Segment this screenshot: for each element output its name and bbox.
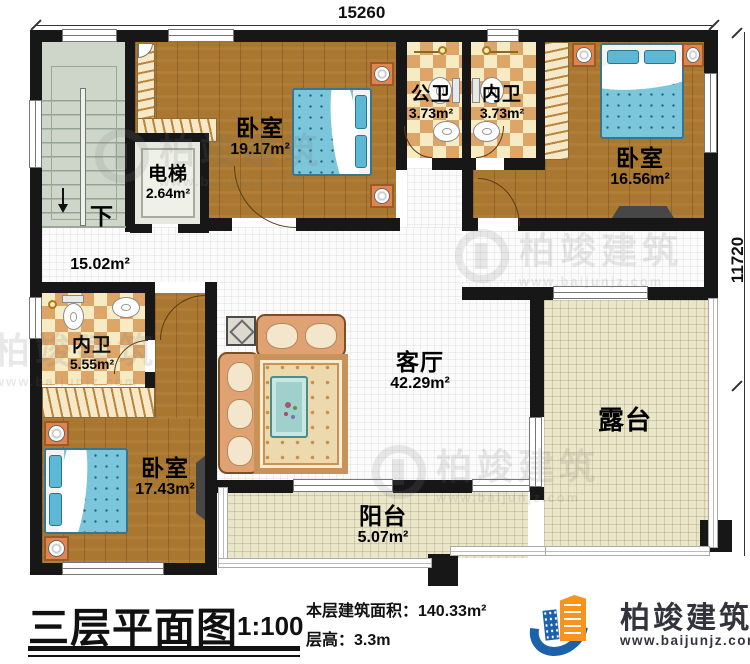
- window: [62, 562, 164, 575]
- room-name: 露台: [563, 406, 687, 435]
- room-area: 16.56m²: [578, 171, 702, 189]
- sheet-title: 三层平面图: [28, 594, 238, 654]
- room-label-public-bath: 公卫 3.73m²: [400, 85, 462, 121]
- room-area: 5.07m²: [321, 529, 445, 547]
- wall-segment: [704, 30, 718, 300]
- toilet-tank: [62, 295, 84, 303]
- floor-area-text: 本层建筑面积：140.33m²: [306, 597, 487, 621]
- balcony-railing: [450, 546, 546, 556]
- floor-plan-sheet: 卧室 19.17m² 公卫 3.73m² 内卫 3.73m² 卧室 16.56m…: [0, 0, 750, 664]
- logo-swoosh-icon: [519, 588, 600, 664]
- watermark-site: www.baijunjz.com: [159, 174, 323, 189]
- shower-head-icon: [438, 46, 447, 55]
- hallway-area-label: 15.02m²: [48, 256, 152, 274]
- pillow: [49, 493, 62, 526]
- title-underline: [28, 655, 300, 657]
- floor-hallway-column: [407, 168, 462, 227]
- terrace-railing: [708, 298, 718, 548]
- wall-segment: [30, 282, 155, 293]
- nightstand: [370, 62, 394, 86]
- room-name: 卧室: [103, 456, 227, 481]
- nightstand: [370, 184, 394, 208]
- sofa-cushion: [227, 362, 253, 392]
- wall-segment: [504, 158, 545, 170]
- sheet-scale: 1:100: [237, 611, 304, 642]
- pillow: [607, 50, 639, 65]
- nightstand: [682, 43, 704, 67]
- room-label-terrace: 露台: [563, 406, 687, 435]
- room-area: 42.29m²: [358, 375, 482, 393]
- pillow: [49, 455, 62, 488]
- window: [704, 73, 717, 153]
- watermark-site: www.baijunjz.com: [0, 374, 158, 389]
- corner-table: [226, 316, 256, 346]
- wardrobe: [542, 42, 569, 160]
- floor-hallway: [42, 227, 462, 282]
- watermark-site: www.baijunjz.com: [519, 274, 683, 289]
- tv: [612, 206, 674, 218]
- shower-rod: [490, 51, 518, 53]
- balcony-railing: [218, 558, 432, 568]
- logo-blue-building-icon: [542, 609, 559, 640]
- room-name: 公卫: [400, 85, 462, 106]
- watermark-logo-icon: [455, 229, 509, 283]
- wall-segment: [536, 42, 545, 160]
- room-label-bedroom-bottom: 卧室 17.43m²: [103, 456, 227, 499]
- floor-height-text: 层高：3.3m: [306, 626, 390, 650]
- watermark-name: 柏竣建筑: [436, 438, 600, 490]
- window: [62, 29, 117, 42]
- room-area: 17.43m²: [103, 481, 227, 499]
- watermark: 柏竣建筑 www.baijunjz.com: [455, 222, 683, 289]
- sink-icon: [433, 121, 460, 142]
- dimension-tick: [731, 380, 742, 391]
- wall-segment: [205, 282, 217, 563]
- room-name: 卧室: [578, 146, 702, 171]
- coffee-table: [270, 376, 308, 438]
- wall-segment: [296, 218, 400, 231]
- room-label-inner-bath-top: 内卫 3.73m²: [470, 85, 534, 121]
- watermark-logo-icon: [95, 129, 149, 183]
- watermark-site: www.baijunjz.com: [436, 490, 600, 505]
- dimension-tick: [731, 27, 742, 38]
- watermark: 柏竣建筑 www.baijunjz.com: [372, 438, 600, 505]
- room-area: 15.02m²: [48, 256, 152, 274]
- corner-pillar: [428, 554, 458, 586]
- wall-segment: [130, 224, 152, 233]
- nightstand: [44, 536, 69, 561]
- watermark-logo-icon: [372, 445, 426, 499]
- wall-segment: [30, 30, 718, 42]
- room-name: 阳台: [321, 504, 445, 529]
- sofa-cushion: [266, 323, 298, 349]
- window: [487, 29, 519, 42]
- wall-segment: [396, 158, 406, 170]
- watermark-name: 柏竣建筑: [519, 222, 683, 274]
- company-name: 柏竣建筑: [620, 593, 750, 637]
- window: [29, 100, 42, 168]
- room-label-balcony: 阳台 5.07m²: [321, 504, 445, 547]
- sofa-cushion: [227, 436, 253, 466]
- room-area: 3.73m²: [400, 106, 462, 121]
- sofa-two-seat: [256, 314, 346, 358]
- watermark-name: 柏竣建筑: [159, 122, 323, 174]
- balcony-railing: [218, 487, 228, 568]
- window: [168, 29, 234, 42]
- watermark: 柏竣建筑 www.baijunjz.com: [95, 122, 323, 189]
- pillow: [355, 95, 367, 129]
- stair-direction-arrow: [62, 188, 64, 204]
- dimension-line-top: [36, 25, 714, 26]
- company-logo: [528, 590, 614, 660]
- wall-segment: [530, 297, 544, 417]
- company-website: www.baijunjz.com: [620, 633, 750, 648]
- sink-icon: [112, 297, 140, 318]
- direction-label: 下: [82, 204, 122, 229]
- nightstand: [572, 43, 596, 67]
- wall-segment: [432, 158, 476, 170]
- sofa-cushion: [227, 399, 253, 429]
- watermark-name: 柏竣建筑: [0, 322, 158, 374]
- room-name: 内卫: [470, 85, 534, 106]
- flower-decor: [285, 402, 291, 408]
- pillow: [355, 135, 367, 169]
- watermark: 柏竣建筑 www.baijunjz.com: [0, 322, 158, 389]
- dimension-right-value: 11720: [728, 215, 748, 305]
- wall-lamp-icon: [48, 300, 57, 309]
- room-label-living-room: 客厅 42.29m²: [358, 350, 482, 393]
- bed: [600, 43, 684, 139]
- room-name: 客厅: [358, 350, 482, 375]
- terrace-railing: [544, 546, 710, 556]
- title-underline: [28, 646, 300, 651]
- stairs-down-label: 下: [82, 204, 122, 229]
- logo-orange-building-icon: [560, 595, 586, 641]
- sofa-cushion: [305, 323, 337, 349]
- dimension-top-value: 15260: [333, 3, 390, 23]
- wall-segment: [208, 218, 232, 231]
- wall-segment: [217, 480, 293, 493]
- stair-direction-arrowhead: [58, 204, 68, 213]
- wardrobe: [42, 387, 155, 418]
- room-label-bedroom-right: 卧室 16.56m²: [578, 146, 702, 189]
- room-area: 3.73m²: [470, 106, 534, 121]
- pillow: [644, 50, 676, 65]
- nightstand: [44, 421, 69, 446]
